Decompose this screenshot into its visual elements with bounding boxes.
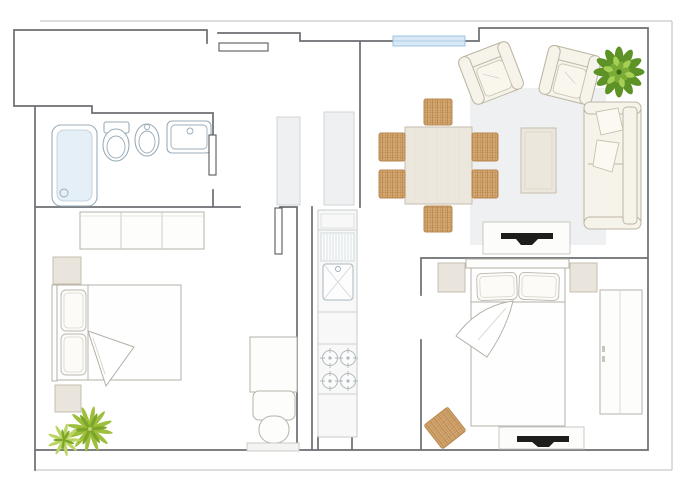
bedroom-1-door — [275, 208, 282, 254]
sofa — [584, 102, 641, 229]
coffee-table — [521, 128, 556, 193]
tv-icon — [517, 436, 569, 442]
floor-plan — [0, 0, 700, 500]
pillow — [61, 290, 86, 331]
bidet — [135, 124, 159, 156]
dining-table — [405, 127, 472, 204]
shower — [52, 125, 97, 206]
drainboard — [321, 233, 354, 261]
tv-stand-living — [483, 222, 570, 254]
bedroom-2 — [424, 259, 642, 449]
sofa-pillow — [596, 108, 623, 135]
bedroom-1 — [52, 212, 299, 451]
bed-bedroom-1 — [52, 285, 181, 386]
bathroom-door — [209, 135, 216, 175]
kitchen-sink — [323, 264, 353, 300]
wicker-pouf — [424, 407, 466, 449]
palm-plant-bedroom-1 — [48, 406, 113, 457]
chair-bedroom-1 — [247, 391, 299, 451]
pillow — [61, 334, 86, 375]
bathroom-sink — [167, 121, 211, 153]
desk — [250, 337, 297, 392]
wardrobe-bedroom-2 — [600, 290, 642, 414]
kitchen-tall-unit — [324, 112, 354, 205]
kitchen — [318, 112, 358, 437]
tv-stand-bedroom-2 — [499, 427, 584, 449]
window — [393, 36, 465, 46]
nightstand — [55, 385, 81, 412]
doors — [209, 43, 282, 254]
headboard — [466, 259, 569, 268]
toilet — [103, 122, 129, 161]
nightstand — [53, 257, 81, 284]
headboard — [52, 285, 57, 381]
floor-plan-canvas — [0, 0, 700, 500]
bed-bedroom-2 — [456, 268, 565, 426]
entry-door — [219, 43, 268, 51]
nightstand — [570, 263, 597, 292]
tv-icon — [501, 233, 553, 239]
wardrobe-bedroom-1 — [80, 212, 204, 249]
bathroom — [52, 121, 211, 206]
nightstand — [438, 263, 465, 292]
hall-cabinet — [277, 117, 300, 205]
